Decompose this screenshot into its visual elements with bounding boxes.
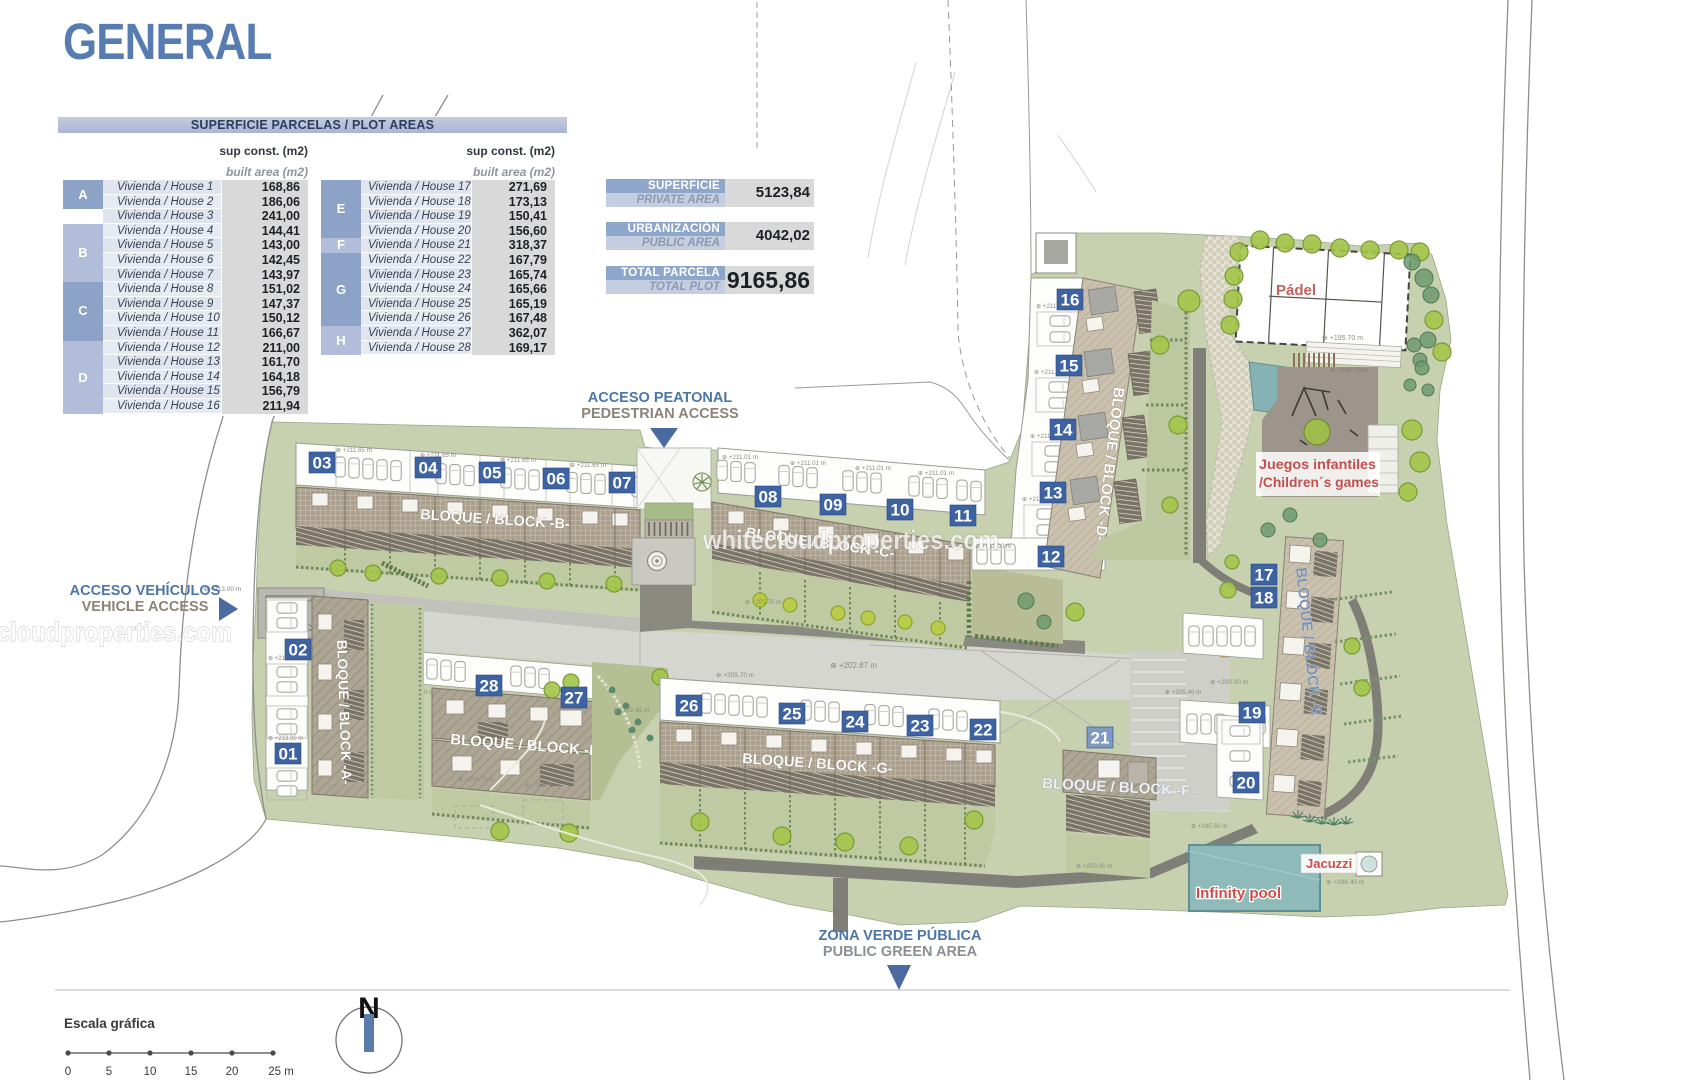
svg-text:0: 0	[65, 1066, 71, 1078]
svg-text:15: 15	[185, 1066, 198, 1078]
svg-text:whitecloudproperties.com: whitecloudproperties.com	[702, 525, 999, 555]
svg-text:20: 20	[226, 1066, 239, 1078]
svg-text:whitecloudproperties.com: whitecloudproperties.com	[0, 617, 232, 647]
svg-text:10: 10	[144, 1066, 157, 1078]
svg-text:Escala gráfica: Escala gráfica	[64, 1016, 155, 1031]
svg-text:25 m: 25 m	[268, 1066, 294, 1078]
svg-text:5: 5	[106, 1066, 112, 1078]
